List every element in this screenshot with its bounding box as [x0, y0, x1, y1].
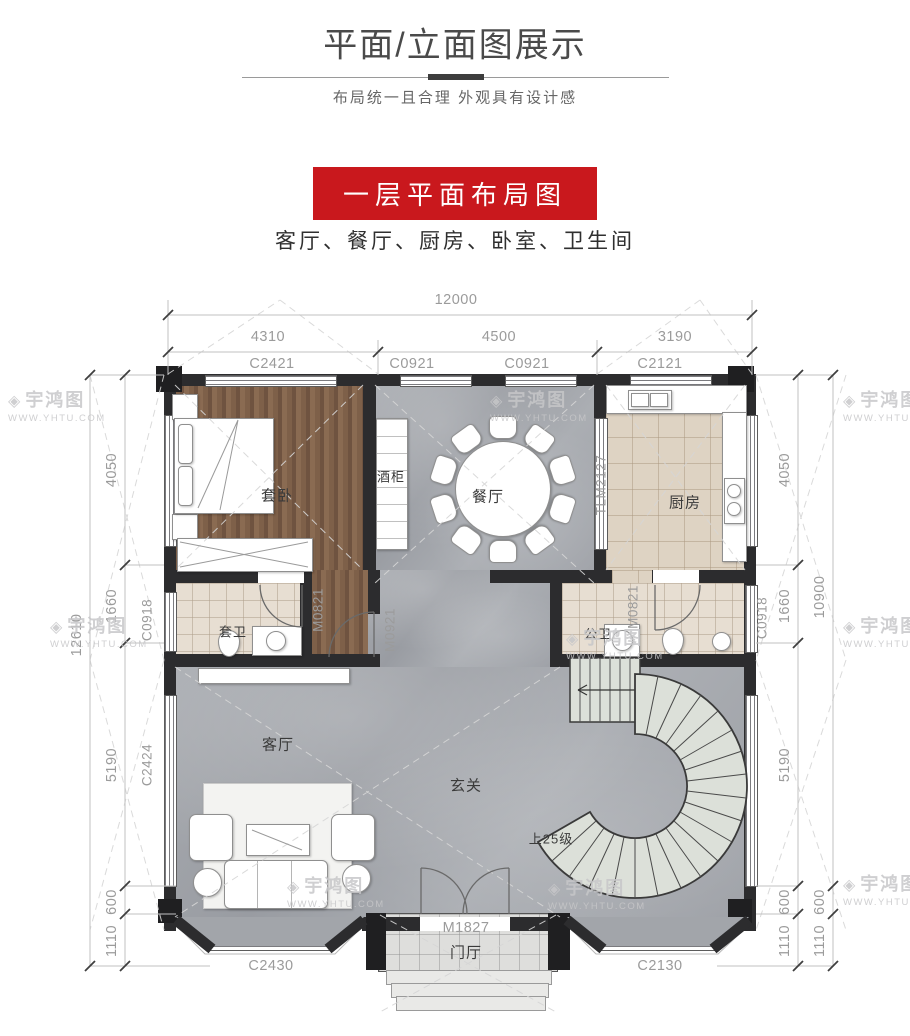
side-table — [342, 864, 371, 893]
door-label-M0821-left: M0821 — [311, 588, 326, 632]
window-C2421 — [205, 375, 337, 387]
corner-pillar — [728, 899, 752, 923]
dim-right-seg: 4050 — [777, 453, 793, 487]
dim-left-total: 12610 — [69, 614, 85, 657]
room-label-kitchen: 厨房 — [669, 492, 701, 513]
bath-sink — [712, 632, 731, 651]
window-label-C0918-left: C0918 — [140, 599, 155, 641]
room-list-line: 客厅、餐厅、厨房、卧室、卫生间 — [275, 225, 635, 255]
pillow — [178, 466, 193, 506]
window-label-C2430: C2430 — [248, 958, 293, 974]
room-label-master: 套卧 — [261, 485, 293, 506]
porch-pillar — [548, 913, 570, 970]
yhtu-logo-icon: ◈ — [843, 877, 857, 894]
dim-right-seg: 5190 — [777, 748, 793, 782]
window-label-C0921: C0921 — [504, 356, 549, 372]
dim-top-seg: 3190 — [658, 329, 692, 345]
door-label-M0921: M0921 — [383, 608, 398, 652]
yhtu-logo-icon: ◈ — [8, 393, 22, 410]
room-label-master-bath: 套卫 — [219, 622, 247, 641]
armchair — [189, 814, 233, 861]
wall-corridor-pubbath — [550, 570, 562, 667]
dining-chair — [489, 416, 517, 439]
watermark: ◈宇鸿图 WWW.YHTU.COM — [8, 386, 138, 424]
watermark: ◈宇鸿图 WWW.YHTU.COM — [843, 612, 910, 650]
dim-left-seg: 1660 — [104, 589, 120, 623]
wardrobe — [177, 538, 313, 572]
room-label-foyer: 玄关 — [450, 775, 482, 796]
door-gap-kitchen — [612, 570, 652, 583]
side-table — [193, 868, 222, 897]
porch-step — [396, 996, 546, 1011]
divider-accent — [428, 74, 484, 80]
room-label-wine: 酒柜 — [377, 467, 405, 486]
washer-drum — [612, 630, 633, 651]
dim-right-seg: 1660 — [777, 589, 793, 623]
page-title: 平面/立面图展示 — [323, 18, 586, 67]
dim-right-seg: 1110 — [777, 925, 793, 957]
dining-chair — [489, 540, 517, 563]
dim-top-seg: 4310 — [251, 329, 285, 345]
room-label-public-bath: 公卫 — [584, 624, 612, 643]
burner — [727, 502, 741, 516]
porch-pillar — [366, 913, 386, 970]
dim-right-outer: 10900 — [812, 576, 828, 619]
window-label-C2121: C2121 — [637, 356, 682, 372]
window-C2430-bay — [208, 937, 334, 951]
dim-left-seg: 1110 — [104, 925, 120, 957]
watermark: ◈宇鸿图 WWW.YHTU.COM — [843, 870, 910, 908]
room-label-living: 客厅 — [262, 734, 294, 755]
wall-bedroom-dining — [363, 385, 376, 570]
page-subtitle: 布局统一且合理 外观具有设计感 — [333, 87, 577, 108]
sofa — [224, 860, 328, 909]
wall-band-bottom-right — [550, 654, 756, 667]
dim-left-seg: 600 — [104, 889, 120, 915]
floor-plan-page: 平面/立面图展示 布局统一且合理 外观具有设计感 一层平面布局图 客厅、餐厅、厨… — [0, 0, 910, 1036]
watermark: ◈宇鸿图 WWW.YHTU.COM — [843, 386, 910, 424]
stairs-note: 上25级 — [529, 829, 573, 848]
dim-right-outer: 1110 — [812, 925, 828, 957]
dim-top-seg: 4500 — [482, 329, 516, 345]
window-label-C2130: C2130 — [637, 958, 682, 974]
dim-left-seg: 5190 — [104, 748, 120, 782]
nightstand — [172, 394, 198, 420]
door-label-M1827: M1827 — [443, 920, 490, 936]
burner — [727, 484, 741, 498]
window-C0921-2 — [505, 375, 577, 387]
door-label-M0821-right: M0821 — [626, 585, 641, 629]
dim-top-total: 12000 — [435, 292, 478, 308]
pillow — [178, 424, 193, 464]
dim-left-seg: 4050 — [104, 453, 120, 487]
sink-basin — [631, 393, 649, 407]
dim-right-outer: 600 — [812, 889, 828, 915]
door-gap-public-bath — [653, 570, 699, 583]
window-C0921-1 — [400, 375, 472, 387]
tv-console — [198, 668, 350, 684]
armchair — [331, 814, 375, 861]
dim-right-seg: 600 — [777, 889, 793, 915]
corner-pillar — [158, 899, 182, 923]
section-badge: 一层平面布局图 — [313, 167, 597, 220]
window-label-C0921: C0921 — [389, 356, 434, 372]
window-stair-east — [745, 695, 758, 887]
window-C2424 — [164, 695, 177, 887]
yhtu-logo-icon: ◈ — [50, 619, 64, 636]
nightstand — [172, 514, 198, 540]
yhtu-logo-icon: ◈ — [843, 393, 857, 410]
window-label-C0918-right: C0918 — [755, 597, 770, 639]
window-label-C2424: C2424 — [140, 744, 155, 786]
window-label-C2421: C2421 — [249, 356, 294, 372]
yhtu-logo-icon: ◈ — [843, 619, 857, 636]
room-label-dining: 餐厅 — [472, 486, 504, 507]
vanity-bowl — [266, 631, 286, 651]
door-label-TLM2127: TLM2127 — [594, 455, 609, 516]
window-C2130-bay — [597, 937, 719, 951]
wall-hall-corridor-a — [368, 570, 380, 614]
room-label-porch: 门厅 — [450, 942, 482, 963]
window-C0918-left — [164, 592, 177, 652]
coffee-table — [246, 824, 310, 856]
corner-pillar — [156, 366, 182, 392]
sink-basin — [650, 393, 668, 407]
